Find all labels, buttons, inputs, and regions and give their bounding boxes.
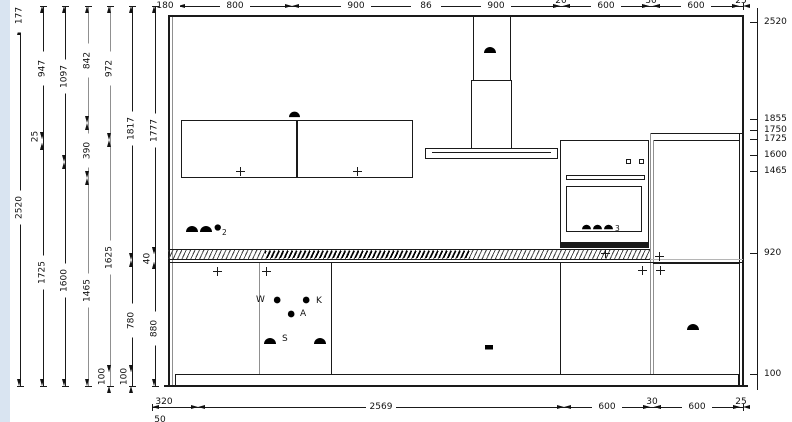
power-connection-icon [313,333,327,345]
v-dim-end-tick [152,386,159,387]
cross-marker [213,267,222,276]
dim-arrow [285,4,292,8]
dim-label: 30 [637,397,667,407]
v-dim-end-tick [40,386,47,387]
oven-control-square [626,159,631,164]
dim-label: 900 [481,1,511,11]
dim-arrow [85,116,89,123]
wall-cabinet-divider [296,120,298,178]
hood-canopy [425,148,558,159]
dim-arrow [85,6,89,13]
height-scale-tick [750,139,757,140]
power-connection-icon [603,221,614,230]
dim-label: 2569 [366,402,396,412]
height-scale-tick [750,155,757,156]
dim-arrow [564,405,571,409]
dim-arrow [62,155,66,162]
dim-arrow [40,379,44,386]
dim-arrow [107,133,111,140]
hood-duct-right-line [510,17,511,81]
tall-cabinet-top-line [650,133,743,134]
dim-label: 1817 [126,112,139,146]
dim-label: 1465 [82,274,95,308]
left-wall [168,15,170,387]
dim-arrow [557,405,564,409]
power-connection-icon [263,333,277,345]
height-scale-tick [750,374,757,375]
circle-cross-icon [301,295,313,305]
hood-body-left-line [471,80,472,148]
cooker-circuits-label: 3 [615,225,620,233]
height-scale-tick [750,253,757,254]
tall-cabinet-left-inner-line [653,140,654,374]
dim-arrow [107,140,111,147]
connection-label-s: S [282,335,288,344]
v-dim-end-tick [17,386,24,387]
cross-marker [601,249,610,258]
dim-label: 20 [546,0,576,6]
dim-arrow [191,405,198,409]
dim-arrow [85,171,89,178]
dim-arrow [129,260,133,267]
dim-label: 600 [681,1,711,11]
height-scale-label: 920 [764,248,792,258]
dim-label: 842 [82,44,95,78]
height-scale-line [757,8,758,390]
dim-label: 177 [14,0,27,33]
dim-label: 40 [142,242,155,276]
hood-body-top-line [471,80,512,81]
v-dim-end-tick [85,386,92,387]
right-wall [742,15,744,387]
ceiling-line [168,15,744,17]
cross-marker [236,167,245,176]
tall-cabinet-shelf-line [653,263,740,264]
height-scale-tick [750,119,757,120]
dim-label: 600 [591,1,621,11]
dim-label: 100 [119,360,132,394]
hood-duct-left-line [473,17,474,81]
connection-label-w: W [256,296,265,305]
dim-label: 947 [37,52,50,86]
dim-label: 972 [104,52,117,86]
height-scale-label: 1855 [764,114,792,124]
dim-label: 25 [726,0,756,6]
dim-arrow [152,379,156,386]
height-scale-label: 2520 [764,17,792,27]
dim-label: 25 [726,397,756,407]
dim-arrow [107,6,111,13]
dim-arrow [85,178,89,185]
cross-marker [353,167,362,176]
base-cabinet-top-line [168,262,743,263]
connection-label-a: A [300,310,306,319]
kitchen-elevation-drawing[interactable]: W K A S 2 3 1808009008690020600306002532… [0,0,792,422]
dim-label: 30 [636,0,666,6]
dim-label: 880 [149,312,162,346]
dim-label: 1625 [104,241,117,275]
height-scale-label: 1725 [764,134,792,144]
hood-canopy-inner-line [432,152,551,153]
tall-cabinet-left-line [650,133,651,374]
dim-label: 600 [592,402,622,412]
dim-label: 50 [145,415,175,422]
dim-label: 320 [149,397,179,407]
circle-cross-icon [272,295,284,305]
connection-label-k: K [316,297,322,306]
cross-marker [656,266,665,275]
dim-label: 800 [220,1,250,11]
dim-arrow [129,253,133,260]
height-scale-tick [750,22,757,23]
dim-arrow [85,123,89,130]
power-connection-icon [288,107,301,118]
plinth-right-line [738,374,739,385]
v-dim-end-tick [62,386,69,387]
dim-label: 25 [30,120,43,154]
dim-arrow [62,379,66,386]
oven-control-square [639,159,644,164]
hood-body-right-line [511,80,512,148]
dim-arrow [198,405,205,409]
dim-arrow [40,6,44,13]
height-scale-label: 100 [764,369,792,379]
base-divider [259,263,260,375]
height-scale-tick [750,171,757,172]
oven-base-band [561,242,648,248]
dim-label: 600 [682,402,712,412]
oven-handle [566,175,645,180]
dim-arrow [62,162,66,169]
power-connection-icon [581,221,592,230]
dim-label: 900 [341,1,371,11]
power-connection-icon [185,221,199,233]
height-scale-label: 1465 [764,166,792,176]
dim-label: 100 [97,360,110,394]
power-connection-icon [592,221,603,230]
plinth-left-line [175,374,176,385]
oven-column-side-line [560,263,561,375]
height-scale-label: 2697 [764,0,792,3]
dim-arrow [292,4,299,8]
cross-marker [262,267,271,276]
dim-arrow [152,6,156,13]
left-margin-strip [0,0,10,422]
cross-marker [655,252,664,261]
dim-label: 1600 [59,264,72,298]
socket-icon [482,339,496,351]
power-connection-icon [483,42,497,54]
floor-line [164,385,748,387]
height-scale-tick [750,130,757,131]
tall-cabinet-front-top-line [653,140,740,141]
cross-marker [638,266,647,275]
left-wall-inner-line [172,17,173,385]
dim-label: 1777 [149,114,162,148]
power-connection-icon [199,221,213,233]
worktop-highlight [265,251,470,258]
circle-slash-icon [213,223,224,232]
circle-cross-icon [286,309,298,319]
dim-arrow [17,379,21,386]
dim-label: 2520 [14,191,27,225]
dim-label: 390 [82,134,95,168]
dim-label: 86 [411,1,441,11]
dim-label: 1725 [37,256,50,290]
plinth-top-line [175,374,739,375]
dim-label: 780 [126,304,139,338]
base-divider [331,263,332,375]
dim-arrow [62,6,66,13]
height-scale-label: 1600 [764,150,792,160]
dim-arrow [85,379,89,386]
dim-arrow [129,6,133,13]
dim-label: 1097 [59,60,72,94]
power-connection-icon [686,319,700,331]
